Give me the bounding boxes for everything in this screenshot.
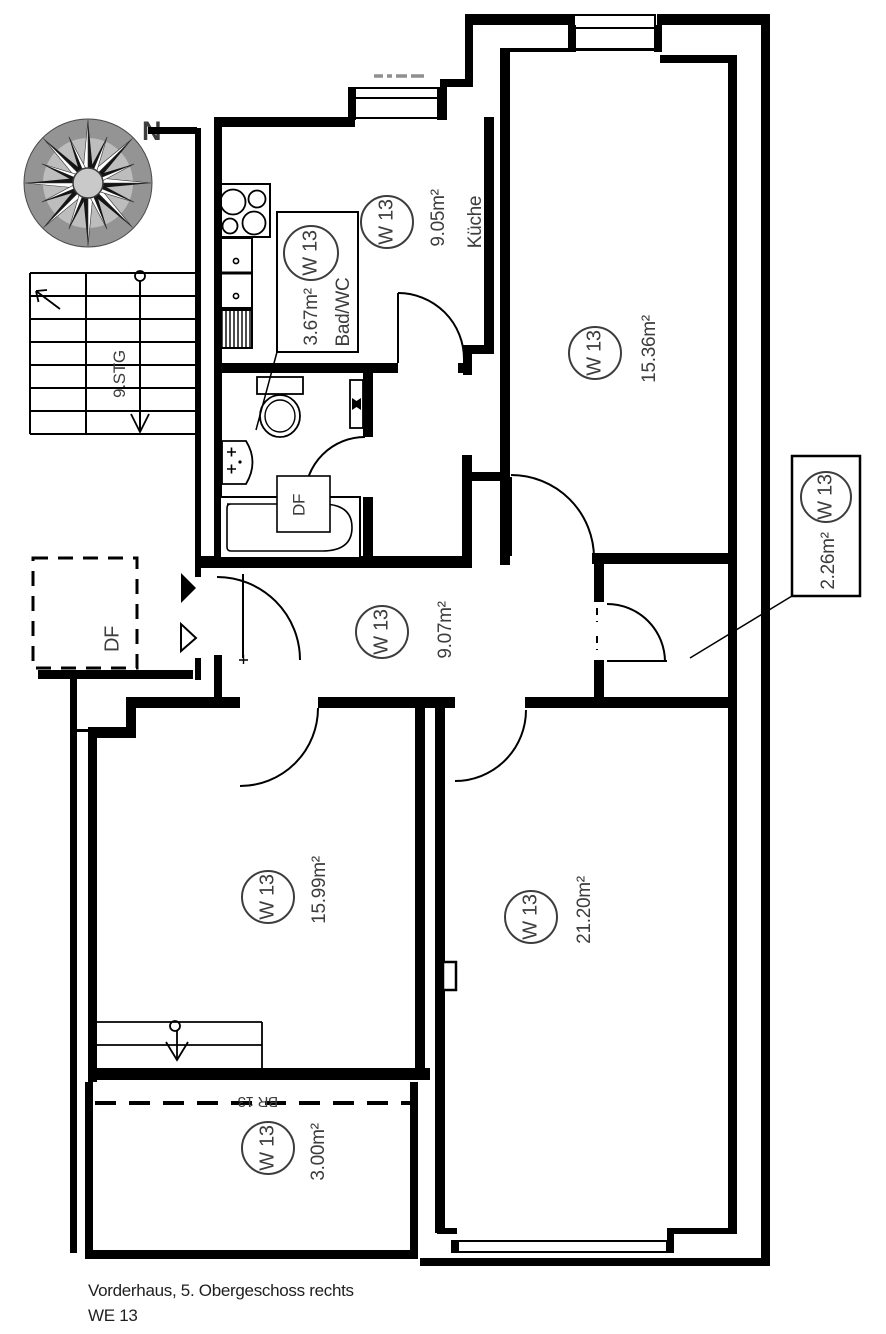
area-label-kammer: 2.26m² xyxy=(818,532,839,589)
staircase-label: 9.STG xyxy=(110,350,129,398)
appliance-hatched-icon xyxy=(218,310,252,348)
door-arc-room2 xyxy=(240,708,318,786)
leader-kammer xyxy=(690,596,792,658)
entrance-triangle-outline xyxy=(181,624,196,651)
room-label-flur: W 13 9.07m² xyxy=(356,601,456,658)
unit-label-zimmer3: W 13 xyxy=(519,894,541,940)
area-label-flur: 9.07m² xyxy=(435,601,456,658)
wall-duct-notch xyxy=(443,962,456,990)
room-label-zimmer1: W 13 15.36m² xyxy=(569,315,660,383)
unit-label-zimmer2: W 13 xyxy=(256,874,278,920)
unit-label-kueche: W 13 xyxy=(375,199,397,245)
door-arc-kammer xyxy=(607,604,665,662)
entrance-markers xyxy=(181,573,196,651)
kitchen-fixtures xyxy=(218,184,270,348)
toilet-tank xyxy=(257,377,303,394)
unit-label-balkon: W 13 xyxy=(256,1125,278,1171)
floor-plan-drawing: N xyxy=(0,0,886,1334)
window-room-top xyxy=(574,15,655,28)
balcony-steps xyxy=(93,1021,262,1068)
skylight-df-plan: DF xyxy=(33,558,137,668)
unit-label-flur: W 13 xyxy=(370,609,392,655)
compass-rose xyxy=(24,119,152,247)
balcony-code-label: BR 13 xyxy=(238,1093,278,1110)
skylight-df-bath: DF xyxy=(277,476,330,532)
area-label-balkon: 3.00m² xyxy=(308,1123,329,1180)
room-name-kueche: Küche xyxy=(465,196,486,248)
area-label-zimmer1: 15.36m² xyxy=(639,315,660,383)
room-label-kueche: W 13 9.05m² Küche xyxy=(361,189,486,248)
caption: Vorderhaus, 5. Obergeschoss rechts WE 13 xyxy=(88,1281,354,1325)
entrance-triangle-filled xyxy=(181,573,196,603)
unit-label-bad: W 13 xyxy=(299,230,321,276)
unit-label-kammer: W 13 xyxy=(814,474,836,520)
door-arc-entrance xyxy=(217,577,300,660)
door-arc-room1 xyxy=(511,475,594,558)
area-label-kueche: 9.05m² xyxy=(428,189,449,246)
room-label-zimmer2: W 13 15.99m² xyxy=(242,856,330,924)
caption-line2: WE 13 xyxy=(88,1306,138,1325)
floor-plan-page: N xyxy=(0,0,886,1334)
window-room-bottom xyxy=(458,1241,667,1252)
washbasin-icon xyxy=(222,441,253,484)
room-label-balkon: W 13 3.00m² xyxy=(242,1122,329,1181)
area-label-bad: 3.67m² xyxy=(301,288,322,345)
unit-label-zimmer1: W 13 xyxy=(583,330,605,376)
callout-bad-wc: W 13 3.67m² Bad/WC xyxy=(277,212,358,352)
window-kitchen xyxy=(355,88,438,98)
df-bath-label: DF xyxy=(289,494,308,516)
toilet-icon xyxy=(260,395,300,437)
area-label-zimmer3: 21.20m² xyxy=(574,876,595,944)
df-plan-label: DF xyxy=(101,626,123,652)
room-name-bad: Bad/WC xyxy=(333,278,354,347)
room-label-zimmer3: W 13 21.20m² xyxy=(505,876,595,944)
caption-line1: Vorderhaus, 5. Obergeschoss rechts xyxy=(88,1281,354,1300)
door-arc-room3 xyxy=(455,710,526,781)
area-label-zimmer2: 15.99m² xyxy=(309,856,330,924)
callout-kammer: W 13 2.26m² xyxy=(792,456,860,596)
stair-arrow-up xyxy=(36,290,60,309)
door-arc-kitchen xyxy=(398,293,464,359)
